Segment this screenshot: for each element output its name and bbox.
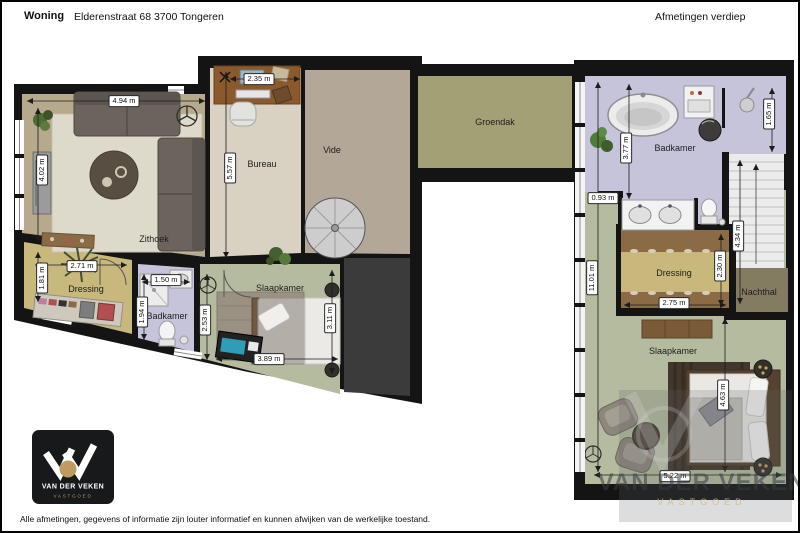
room-label-slaapkamer-right: Slaapkamer (649, 346, 697, 356)
room-label-dressing-left: Dressing (68, 284, 104, 294)
dim-label: 3.11 m (324, 303, 336, 333)
dim-label: 3.77 m (620, 133, 632, 164)
room-label-badkamer-right: Badkamer (654, 143, 695, 153)
room-label-badkamer-left: Badkamer (146, 311, 187, 321)
sideboard (642, 320, 712, 338)
dim-label: 2.35 m (244, 73, 275, 85)
dim-label: 3.89 m (254, 353, 285, 365)
room-label-dressing-right: Dressing (656, 268, 692, 278)
dim-label: 1.50 m (151, 274, 182, 286)
dim-label: 2.75 m (659, 297, 690, 309)
dim-label: 2.53 m (199, 305, 211, 336)
left-plan (14, 56, 580, 404)
divider-wall (722, 88, 725, 128)
room-label-nachthal: Nachthal (741, 287, 777, 297)
round-rug (90, 151, 138, 199)
room-label-groendak: Groendak (475, 117, 515, 127)
window-left-wall (15, 120, 24, 230)
spiral-staircase (305, 198, 365, 258)
dim-label: 0.93 m (588, 192, 619, 204)
room-label-bureau: Bureau (247, 159, 276, 169)
disclaimer-text: Alle afmetingen, gegevens of informatie … (20, 514, 430, 524)
dim-label: 2.71 m (67, 260, 98, 272)
dim-label: 4.63 m (717, 380, 729, 411)
room-label-zithoek: Zithoek (139, 234, 169, 244)
dim-label: 11.01 m (586, 261, 598, 296)
dim-label: 4.02 m (36, 155, 48, 186)
dim-label: 5.57 m (224, 153, 236, 184)
logo-circle (60, 461, 77, 478)
cabinet (684, 86, 714, 118)
logo-name: VAN DER VEKEN (42, 484, 104, 491)
desk (214, 66, 300, 104)
dim-label: 4.94 m (109, 95, 140, 107)
double-vanity (618, 198, 698, 230)
toilet (159, 321, 175, 346)
dim-label: 1.81 m (36, 263, 48, 294)
dim-label: 1.94 m (136, 297, 148, 328)
desk-chair (230, 102, 256, 126)
side-table (754, 360, 772, 378)
logo-subtitle: VASTGOED (53, 494, 92, 499)
closet-top (621, 230, 729, 252)
dim-label: 1.65 m (763, 99, 775, 130)
round-basin (699, 119, 721, 141)
dim-label: 2.30 m (714, 251, 726, 282)
washbasin-small (180, 336, 188, 344)
sideboard (42, 233, 95, 249)
floorplan-page: Woning Elderenstraat 68 3700 Tongeren Af… (0, 0, 800, 533)
watermark-name: VAN DER VEKEN (598, 469, 800, 497)
room-label-slaapkamer-left: Slaapkamer (256, 283, 304, 293)
window-wall (575, 78, 585, 472)
watermark-subtitle: VASTGOED (657, 497, 746, 507)
room-label-vide: Vide (323, 145, 341, 155)
dim-label: 4.34 m (732, 221, 744, 252)
flat-roof-dark (344, 258, 410, 396)
